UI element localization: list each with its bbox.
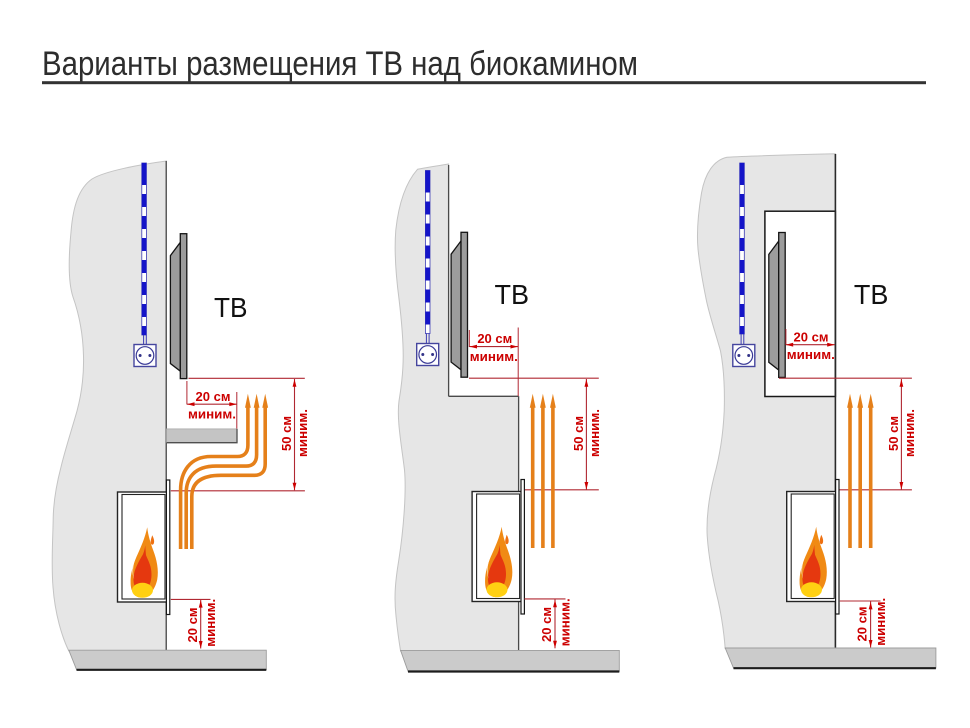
svg-text:миним.: миним.: [558, 598, 573, 646]
svg-text:20 см: 20 см: [196, 389, 231, 404]
svg-text:ТВ: ТВ: [214, 292, 248, 323]
svg-text:миним.: миним.: [188, 406, 236, 421]
svg-text:50 см: 50 см: [886, 416, 901, 451]
svg-text:миним.: миним.: [203, 599, 218, 647]
svg-text:миним.: миним.: [470, 349, 518, 364]
svg-text:миним.: миним.: [902, 409, 917, 457]
svg-text:Варианты размещения ТВ над био: Варианты размещения ТВ над биокамином: [42, 45, 638, 83]
svg-text:ТВ: ТВ: [495, 279, 530, 310]
svg-text:ТВ: ТВ: [854, 279, 889, 310]
svg-text:20 см: 20 см: [477, 331, 512, 346]
svg-text:50 см: 50 см: [571, 416, 586, 451]
svg-text:20 см: 20 см: [539, 607, 554, 642]
svg-text:20 см: 20 см: [855, 607, 870, 642]
svg-text:миним.: миним.: [787, 347, 835, 362]
svg-text:50 см: 50 см: [279, 416, 294, 451]
svg-text:миним.: миним.: [873, 598, 888, 646]
svg-text:20 см: 20 см: [794, 329, 829, 344]
svg-text:миним.: миним.: [295, 409, 310, 457]
svg-text:миним.: миним.: [587, 409, 602, 457]
svg-text:20 см: 20 см: [185, 608, 200, 643]
